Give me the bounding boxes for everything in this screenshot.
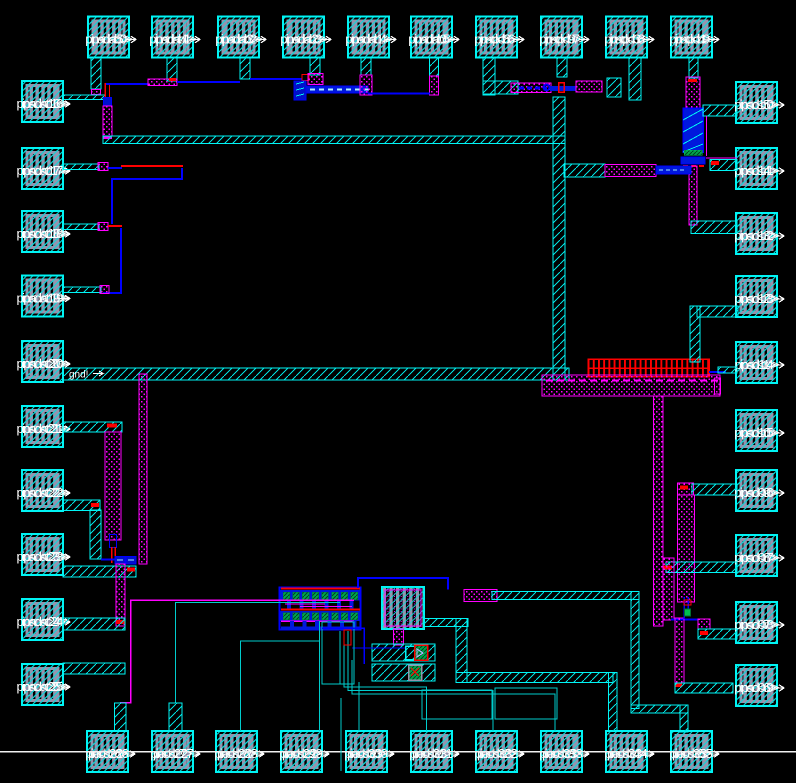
svg-text:pad<r2>: pad<r2> [741, 228, 779, 243]
svg-text:pad<r4>: pad<r4> [741, 357, 779, 372]
svg-text:pad<r3>: pad<r3> [741, 291, 779, 306]
svg-text:pad<r0>: pad<r0> [741, 97, 779, 112]
svg-text:pad<r8>: pad<r8> [741, 617, 779, 632]
svg-text:pad<r5>: pad<r5> [741, 425, 779, 440]
svg-text:pad<r1>: pad<r1> [741, 163, 779, 178]
svg-text:pad<r6>: pad<r6> [741, 485, 779, 500]
svg-text:pad<r7>: pad<r7> [741, 550, 779, 565]
svg-text:pad<r9>: pad<r9> [741, 680, 779, 695]
svg-text:gnd!: gnd! [69, 370, 88, 381]
